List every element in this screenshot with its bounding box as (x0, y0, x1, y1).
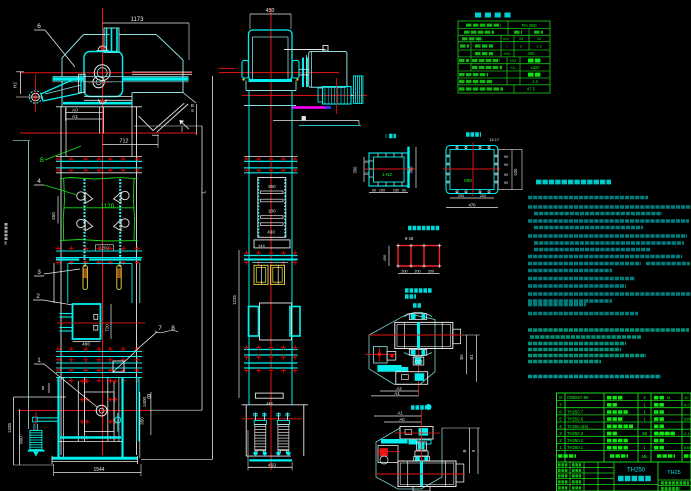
svg-text:430: 430 (267, 229, 275, 234)
svg-text:MM: MM (504, 52, 510, 56)
svg-text:7: 7 (559, 402, 562, 407)
svg-text:200: 200 (480, 194, 486, 198)
svg-text:10: 10 (684, 395, 689, 400)
svg-text:450: 450 (266, 8, 275, 14)
svg-text:2.4: 2.4 (684, 431, 690, 436)
svg-text:800: 800 (19, 436, 24, 444)
svg-text:90: 90 (402, 189, 406, 193)
svg-text:TH250.1: TH250.1 (567, 445, 584, 450)
svg-text:350: 350 (353, 166, 358, 174)
svg-text:80: 80 (365, 171, 370, 176)
svg-text:8: 8 (559, 395, 562, 400)
svg-text:150: 150 (379, 189, 385, 193)
svg-text:1335: 1335 (7, 422, 12, 433)
svg-text:90: 90 (504, 155, 508, 159)
svg-text:TH250.2: TH250.2 (567, 438, 584, 443)
svg-text:≥320: ≥320 (530, 65, 540, 70)
svg-text:7: 7 (158, 325, 162, 332)
svg-text:9.0: 9.0 (684, 402, 690, 407)
svg-text:L: L (202, 190, 208, 193)
svg-text:30: 30 (519, 36, 524, 41)
svg-text:B: B (40, 158, 44, 164)
svg-text:6: 6 (559, 410, 562, 415)
svg-text:144: 144 (258, 243, 265, 248)
svg-text:3: 3 (559, 431, 562, 436)
svg-text:A1: A1 (72, 114, 78, 120)
svg-text:TH 250: TH 250 (521, 23, 537, 28)
svg-text:TH250.6: TH250.6 (567, 417, 584, 422)
svg-text:A1: A1 (394, 391, 400, 396)
svg-text:2: 2 (36, 293, 40, 300)
svg-text:150: 150 (393, 189, 399, 193)
svg-text:A1: A1 (397, 411, 403, 416)
svg-text:MM: MM (510, 59, 516, 63)
svg-text:1225: 1225 (232, 295, 237, 305)
svg-text:II: II (42, 386, 45, 392)
svg-text:5: 5 (559, 417, 562, 422)
svg-text:80: 80 (365, 159, 370, 164)
svg-text:90: 90 (504, 163, 508, 167)
svg-text:1544: 1544 (93, 467, 104, 473)
svg-text:TH250.3: TH250.3 (567, 431, 584, 436)
svg-text:GB5827-86: GB5827-86 (567, 395, 589, 400)
svg-text:B: B (147, 395, 151, 401)
svg-text:1: 1 (559, 445, 562, 450)
svg-text:TH25: TH25 (667, 470, 680, 476)
svg-text:B: B (462, 449, 467, 452)
svg-text:1400: 1400 (142, 396, 147, 407)
svg-text:13-17: 13-17 (489, 137, 500, 142)
svg-text:l: l (507, 44, 508, 49)
svg-text:B1: B1 (469, 354, 474, 360)
svg-text:200: 200 (401, 270, 407, 274)
svg-text:6: 6 (37, 23, 41, 30)
svg-text:H: H (3, 241, 8, 244)
svg-text:TH250: TH250 (627, 468, 646, 474)
svg-text:4: 4 (559, 424, 562, 429)
svg-text:200: 200 (458, 194, 464, 198)
svg-text:250: 250 (268, 184, 276, 189)
svg-text:90: 90 (504, 181, 508, 185)
svg-text:1-N2: 1-N2 (382, 172, 392, 177)
svg-text:90: 90 (372, 189, 376, 193)
svg-text:38: 38 (642, 431, 647, 436)
svg-text:TH250.4(5): TH250.4(5) (567, 424, 589, 429)
svg-text:1.3: 1.3 (536, 44, 542, 49)
svg-text:350: 350 (140, 417, 145, 425)
svg-text:535: 535 (684, 417, 691, 422)
svg-text:430: 430 (382, 254, 387, 261)
svg-text:H2: H2 (13, 82, 19, 88)
svg-text:40: 40 (537, 36, 542, 41)
svg-text:2: 2 (559, 438, 562, 443)
svg-text:Q235-A: Q235-A (657, 431, 671, 436)
svg-text:A0: A0 (72, 108, 78, 114)
svg-text:450: 450 (51, 212, 56, 220)
svg-text:200: 200 (428, 270, 434, 274)
svg-text:600: 600 (464, 178, 472, 183)
svg-text:A0: A0 (399, 417, 405, 422)
svg-text:8-18: 8-18 (405, 236, 414, 241)
svg-text:200: 200 (414, 270, 420, 274)
svg-text:835: 835 (684, 445, 691, 450)
svg-text:TH250.7: TH250.7 (567, 410, 584, 415)
svg-text:KN: KN (511, 66, 516, 70)
svg-text:47.5: 47.5 (527, 86, 536, 91)
svg-text:3: 3 (37, 269, 41, 276)
svg-text:360: 360 (409, 166, 414, 174)
svg-text:1: 1 (37, 357, 41, 364)
svg-text:450: 450 (528, 51, 536, 56)
svg-text:4: 4 (37, 178, 41, 185)
svg-text:M: M (667, 395, 670, 400)
svg-text:470: 470 (469, 203, 477, 208)
svg-text:720: 720 (105, 324, 110, 332)
svg-text:90: 90 (504, 173, 508, 177)
svg-text:1.2: 1.2 (532, 79, 538, 84)
svg-text:180: 180 (268, 208, 276, 213)
svg-text:712: 712 (119, 139, 128, 145)
svg-text:520: 520 (513, 168, 518, 176)
svg-text:1173: 1173 (131, 17, 145, 23)
svg-text:mm: mm (503, 37, 509, 41)
svg-text:Mk: Mk (642, 454, 648, 459)
svg-text:1120: 1120 (101, 203, 115, 210)
svg-text:B5: B5 (459, 354, 464, 360)
